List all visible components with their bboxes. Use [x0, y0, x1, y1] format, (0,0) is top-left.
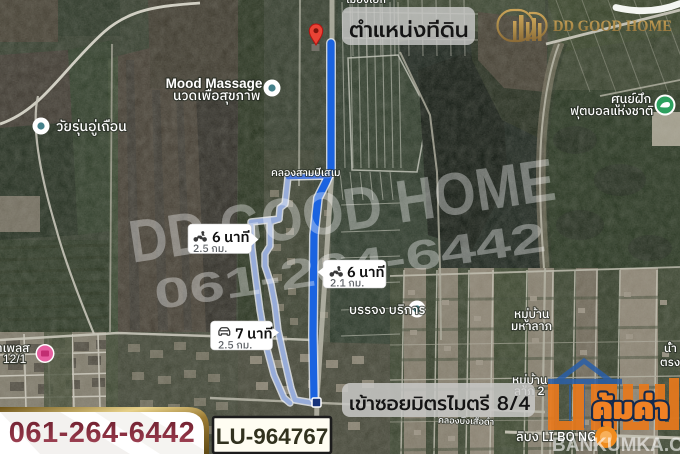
svg-text:LU-964767: LU-964767	[216, 424, 329, 449]
svg-text:Mood Massage: Mood Massage	[166, 76, 263, 91]
svg-text:12/1: 12/1	[3, 352, 27, 366]
svg-text:BANKUMKA.COM: BANKUMKA.COM	[552, 435, 680, 454]
svg-text:061-264-6442: 061-264-6442	[9, 417, 196, 449]
svg-text:DD GOOD HOME: DD GOOD HOME	[553, 18, 672, 35]
